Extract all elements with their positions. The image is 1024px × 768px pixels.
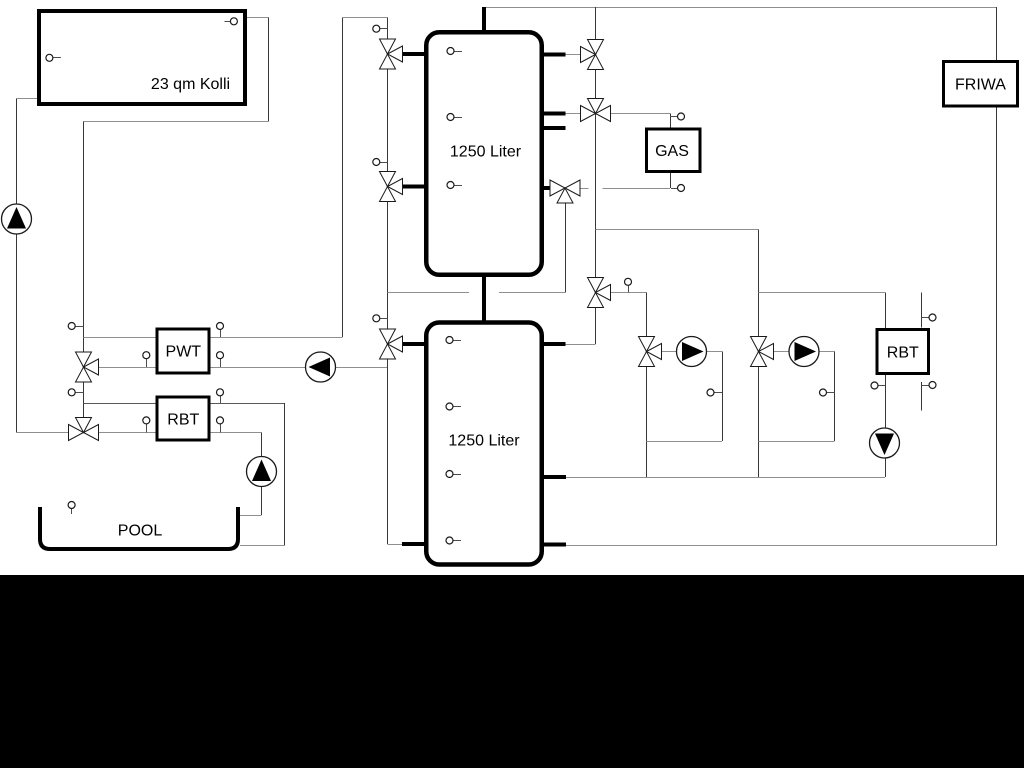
svg-text:GAS: GAS: [655, 143, 689, 160]
svg-text:PWT: PWT: [166, 344, 202, 361]
svg-text:1250 Liter: 1250 Liter: [450, 144, 522, 161]
svg-text:FRIWA: FRIWA: [955, 77, 1006, 94]
svg-text:POOL: POOL: [118, 523, 163, 540]
svg-text:RBT: RBT: [887, 345, 919, 362]
svg-text:23 qm Kolli: 23 qm Kolli: [151, 76, 230, 93]
svg-text:RBT: RBT: [167, 412, 199, 429]
svg-text:1250 Liter: 1250 Liter: [448, 433, 520, 450]
